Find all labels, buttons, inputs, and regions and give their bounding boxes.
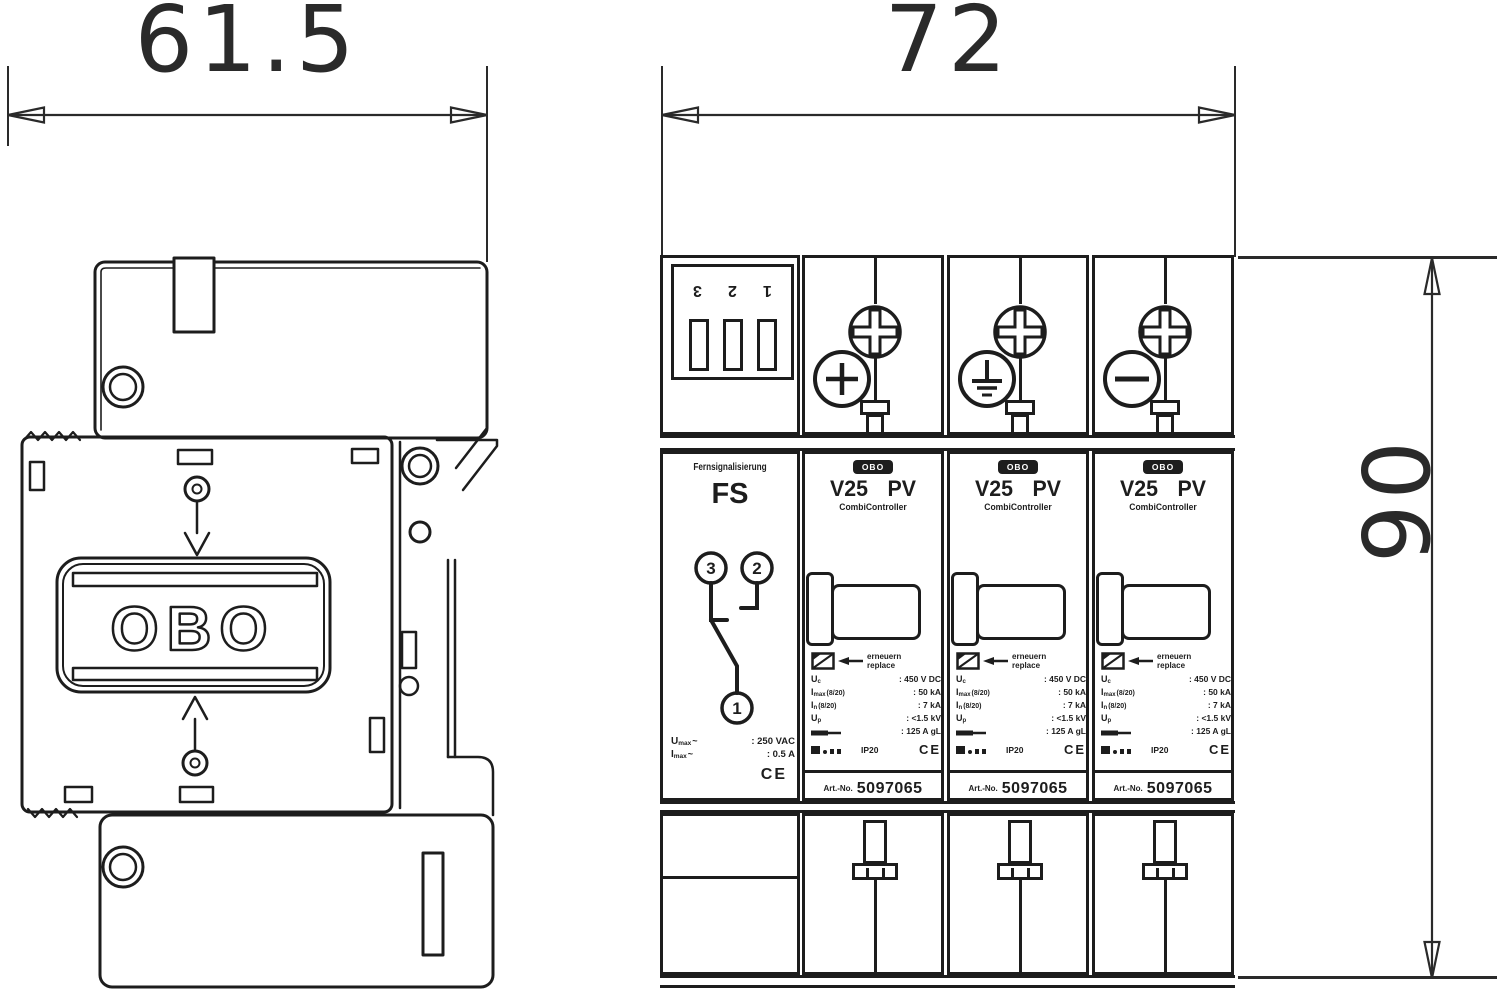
clip-bottom-profile [448, 757, 493, 815]
top-slot [178, 450, 212, 464]
clip-detail [370, 718, 384, 752]
fs-title: Fernsignalisierung [675, 462, 785, 473]
v25-module: OBO V25 PV CombiController [802, 451, 944, 801]
extension-line [1234, 66, 1237, 257]
housing-step [660, 435, 1235, 451]
module-ratings: erneuern replace Uc : 450 V DC Imax (8/2… [956, 648, 1086, 757]
bottom-clamp [1142, 863, 1188, 880]
top-slot [352, 449, 378, 463]
fuse-icon [811, 729, 841, 737]
rating-row: In (8/20): 7 kA [1101, 700, 1231, 713]
cover-corner-cut [456, 428, 487, 468]
dimension-61-5: 61.5 [67, 0, 427, 86]
side-view-drawing: OBO [0, 250, 520, 991]
clip-detail-hole [400, 677, 418, 695]
extension-line [486, 66, 489, 262]
fs-module: Fernsignalisierung FS 3 2 1 Umax ~ [660, 451, 800, 801]
module-ratings: erneuern replace Uc : 450 V DC Imax (8/2… [811, 648, 941, 757]
defect-indicator-icon [811, 652, 835, 670]
bottom-slot [65, 787, 92, 802]
approvals-row: IP20 CE [956, 742, 1086, 757]
article-number: 5097065 [857, 780, 923, 798]
dimension-line-horizontal [661, 103, 1236, 127]
rating-row: In (8/20): 7 kA [956, 700, 1086, 713]
fs-bottom-section [660, 813, 800, 975]
clamp-terminal [1150, 400, 1180, 415]
clip-rivet-small [410, 522, 430, 542]
ip-rating: IP20 [1006, 745, 1024, 755]
bottom-clamp [852, 863, 898, 880]
terminal-label: 3 [680, 273, 715, 307]
release-point [185, 477, 209, 501]
approvals-row: IP20 CE [1101, 742, 1231, 757]
dimension-72: 72 [768, 0, 1128, 86]
plug-handle[interactable] [976, 584, 1066, 640]
terminal-label: 1 [750, 273, 785, 307]
approval-marks-icon [956, 744, 990, 755]
article-number-row: Art.-No. 5097065 [805, 770, 941, 804]
arrow-up-icon [183, 697, 207, 719]
fs-abbr: FS [663, 478, 797, 511]
module-title: V25 PV [1097, 476, 1229, 502]
module-bottom-section [947, 813, 1089, 975]
technical-drawing: 61.5 72 90 [0, 0, 1500, 991]
extension-line [1238, 256, 1497, 259]
article-number-label: Art.-No. [1113, 784, 1142, 793]
ip-rating: IP20 [1151, 745, 1169, 755]
bottom-slot [180, 787, 213, 802]
article-number-label: Art.-No. [823, 784, 852, 793]
extension-line [1238, 976, 1497, 979]
ce-mark: CE [1064, 742, 1086, 757]
rating-row: Up : <1.5 kV [811, 713, 941, 726]
replace-text-en: replace [867, 661, 901, 670]
v25-module: OBO V25 PV CombiController [1092, 451, 1234, 801]
fs-rating-row: Umax ~ : 250 VAC [671, 736, 795, 749]
base-rail [660, 975, 1235, 988]
rating-row: Imax (8/20): 50 kA [1101, 687, 1231, 700]
terminal-slot [689, 319, 709, 371]
module-bottom-section [802, 813, 944, 975]
approval-marks-icon [1101, 744, 1135, 755]
upper-cover-outline [95, 262, 487, 438]
arrow-down-icon [185, 533, 209, 555]
ce-mark: CE [1209, 742, 1231, 757]
plug-grip[interactable] [951, 572, 979, 646]
defect-indicator-icon [956, 652, 980, 670]
housing-step [660, 801, 1235, 813]
contact-number: 2 [752, 559, 761, 578]
replace-text-en: replace [1012, 661, 1046, 670]
approval-marks-icon [811, 744, 845, 755]
ce-mark: CE [761, 766, 787, 784]
ce-mark: CE [919, 742, 941, 757]
bottom-terminal-slot [1008, 820, 1032, 864]
clip-detail [402, 632, 416, 668]
replace-text-de: erneuern [1157, 652, 1191, 661]
module-title: V25 PV [952, 476, 1084, 502]
replace-indicator: erneuern replace [811, 648, 941, 674]
extension-line [661, 66, 664, 257]
changeover-contact-diagram: 3 2 1 [675, 544, 790, 734]
plug-handle[interactable] [831, 584, 921, 640]
arrow-left-icon [983, 656, 1009, 666]
rating-row: Uc : 450 V DC [956, 674, 1086, 687]
rating-row: In (8/20): 7 kA [811, 700, 941, 713]
rating-row: Uc : 450 V DC [811, 674, 941, 687]
contact-number: 1 [732, 699, 741, 718]
front-view-drawing: 3 2 1 [660, 255, 1238, 988]
upper-cover-inner-line [101, 268, 480, 430]
module-subtitle: CombiController [957, 502, 1079, 513]
contact-number: 3 [706, 559, 715, 578]
article-number: 5097065 [1002, 780, 1068, 798]
v25-module: OBO V25 PV CombiController [947, 451, 1089, 801]
rating-row-fuse: : 125 A gL [811, 726, 941, 739]
ip-rating: IP20 [861, 745, 879, 755]
module-subtitle: CombiController [1102, 502, 1224, 513]
rating-row-fuse: : 125 A gL [1101, 726, 1231, 739]
terminal-slot [757, 319, 777, 371]
dimension-line-horizontal [7, 103, 488, 127]
obo-logo-text: OBO [110, 595, 275, 664]
article-number-row: Art.-No. 5097065 [1095, 770, 1231, 804]
lower-cover-outline [100, 815, 493, 987]
obo-logo-chip: OBO [1143, 460, 1183, 474]
fuse-icon [1101, 729, 1131, 737]
article-number: 5097065 [1147, 780, 1213, 798]
module-top-section [1092, 255, 1234, 435]
module-subtitle: CombiController [812, 502, 934, 513]
clip-top-profile [437, 440, 497, 490]
replace-text-de: erneuern [1012, 652, 1046, 661]
approvals-row: IP20 CE [811, 742, 941, 757]
rating-row: Imax (8/20): 50 kA [811, 687, 941, 700]
module-ratings: erneuern replace Uc : 450 V DC Imax (8/2… [1101, 648, 1231, 757]
fs-rating-row: Imax ~ : 0.5 A [671, 749, 795, 762]
rating-row-fuse: : 125 A gL [956, 726, 1086, 739]
obo-logo-chip: OBO [998, 460, 1038, 474]
fuse-icon [956, 729, 986, 737]
terminal-label: 2 [715, 273, 750, 307]
replace-indicator: erneuern replace [956, 648, 1086, 674]
replace-text-de: erneuern [867, 652, 901, 661]
rating-row: Uc : 450 V DC [1101, 674, 1231, 687]
defect-indicator-icon [1101, 652, 1125, 670]
dimension-line-vertical [1420, 257, 1444, 979]
article-number-row: Art.-No. 5097065 [950, 770, 1086, 804]
replace-indicator: erneuern replace [1101, 648, 1231, 674]
clip-rivet [402, 448, 438, 484]
plug-handle[interactable] [1121, 584, 1211, 640]
side-notch [30, 462, 44, 490]
clamp-terminal [860, 400, 890, 415]
clamp-terminal [1005, 400, 1035, 415]
rating-row: Up : <1.5 kV [956, 713, 1086, 726]
logo-plate-bottom-bar [73, 668, 317, 680]
logo-plate-top-bar [73, 573, 317, 586]
arrow-left-icon [1128, 656, 1154, 666]
arrow-left-icon [838, 656, 864, 666]
release-point [183, 751, 207, 775]
terminal-slot [723, 319, 743, 371]
plug-grip[interactable] [806, 572, 834, 646]
module-top-section [947, 255, 1089, 435]
module-title: V25 PV [807, 476, 939, 502]
article-number-label: Art.-No. [968, 784, 997, 793]
module-top-section [802, 255, 944, 435]
bottom-clamp [997, 863, 1043, 880]
fs-top-section: 3 2 1 [660, 255, 800, 435]
rating-row: Up : <1.5 kV [1101, 713, 1231, 726]
fs-ratings: Umax ~ : 250 VAC Imax ~ : 0.5 A [671, 736, 795, 762]
cover-notch [174, 258, 214, 332]
bottom-terminal-slot [1153, 820, 1177, 864]
lower-cover-slot [423, 853, 443, 955]
fs-terminal-block: 3 2 1 [671, 264, 794, 380]
rating-row: Imax (8/20): 50 kA [956, 687, 1086, 700]
bottom-terminal-slot [863, 820, 887, 864]
plug-grip[interactable] [1096, 572, 1124, 646]
replace-text-en: replace [1157, 661, 1191, 670]
module-bottom-section [1092, 813, 1234, 975]
obo-logo-chip: OBO [853, 460, 893, 474]
